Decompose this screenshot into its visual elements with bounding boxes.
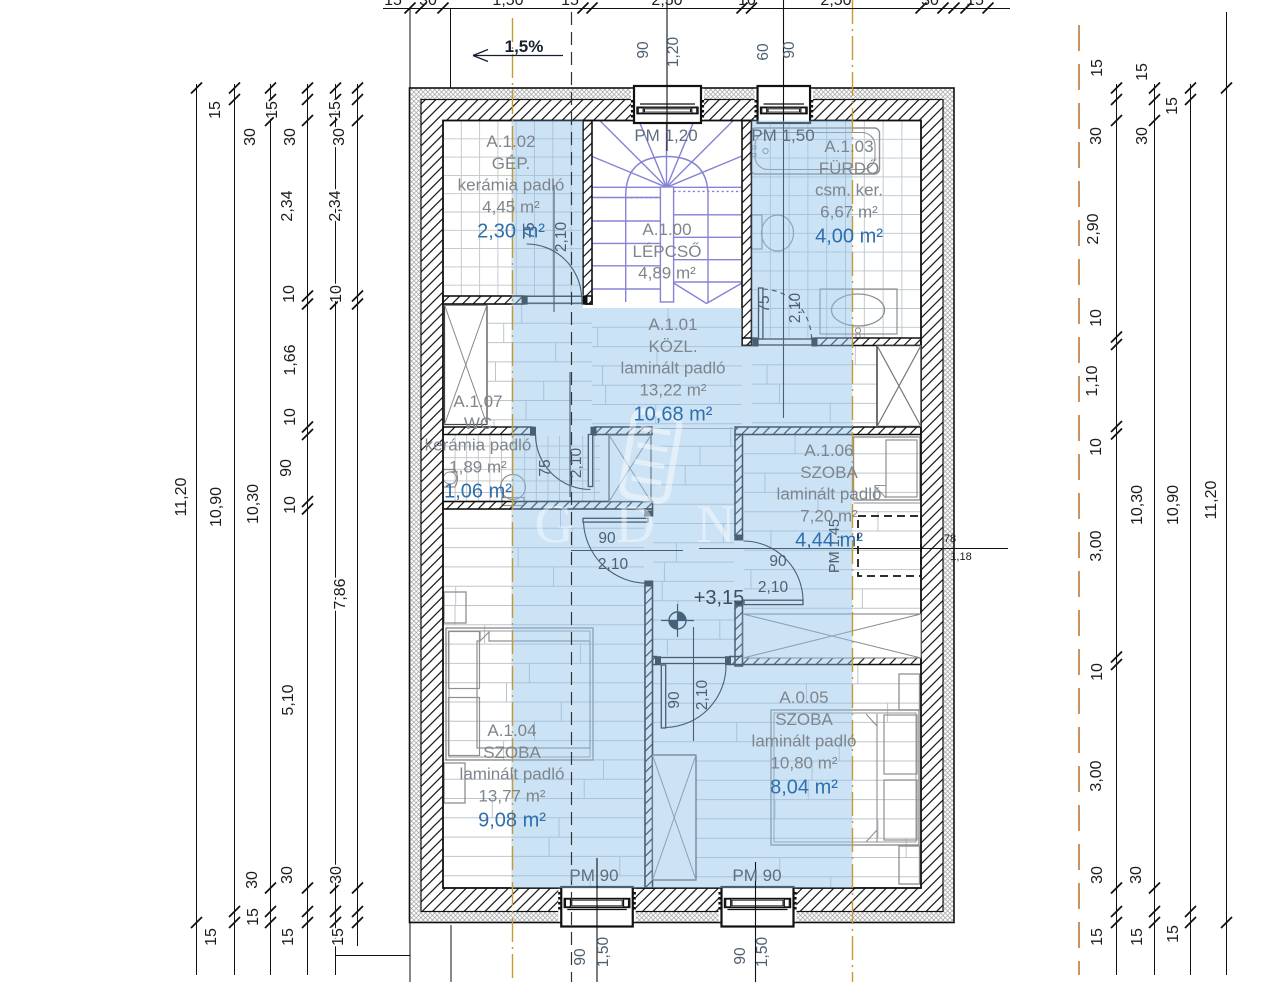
svg-text:A.1.06: A.1.06 (804, 441, 853, 460)
svg-text:15: 15 (384, 0, 402, 9)
svg-text:laminált padló: laminált padló (460, 765, 565, 784)
svg-text:LÉPCSŐ: LÉPCSŐ (633, 242, 702, 261)
svg-text:1,66: 1,66 (282, 344, 299, 375)
svg-text:15: 15 (1089, 59, 1106, 77)
svg-text:13,22 m²: 13,22 m² (639, 380, 706, 399)
svg-text:8,04 m²: 8,04 m² (770, 777, 838, 799)
svg-text:A.1.01: A.1.01 (648, 315, 697, 334)
svg-text:10: 10 (281, 285, 298, 303)
svg-text:2,34: 2,34 (327, 190, 344, 221)
svg-text:13,77 m²: 13,77 m² (478, 786, 545, 805)
svg-text:30: 30 (1134, 127, 1151, 145)
svg-text:7,20 m²: 7,20 m² (800, 506, 858, 525)
svg-text:60: 60 (755, 43, 772, 61)
svg-text:WC: WC (464, 414, 492, 433)
svg-text:11,20: 11,20 (1203, 480, 1220, 519)
svg-text:30: 30 (328, 866, 345, 884)
svg-text:90: 90 (732, 947, 749, 965)
svg-text:1,06 m²: 1,06 m² (444, 481, 512, 503)
svg-text:15: 15 (330, 928, 347, 946)
svg-text:PM 1,20: PM 1,20 (634, 126, 697, 145)
svg-text:2,50: 2,50 (820, 0, 851, 9)
svg-text:15: 15 (245, 908, 262, 926)
svg-text:10,68 m²: 10,68 m² (634, 404, 713, 426)
svg-text:4,00 m²: 4,00 m² (815, 226, 883, 248)
svg-text:15: 15 (1164, 97, 1181, 115)
svg-text:11,20: 11,20 (173, 477, 190, 516)
svg-text:10,80 m²: 10,80 m² (770, 753, 837, 772)
svg-text:15: 15 (264, 101, 281, 119)
svg-text:15: 15 (280, 928, 297, 946)
svg-text:FÜRDŐ: FÜRDŐ (819, 159, 879, 178)
svg-text:30: 30 (419, 0, 437, 9)
svg-text:PM 90: PM 90 (732, 866, 781, 885)
svg-text:A.1.04: A.1.04 (487, 721, 536, 740)
svg-text:PM 90: PM 90 (569, 866, 618, 885)
svg-text:3,00: 3,00 (1088, 760, 1105, 791)
svg-text:15: 15 (1089, 928, 1106, 946)
svg-text:10: 10 (282, 408, 299, 426)
svg-text:10,90: 10,90 (1165, 485, 1182, 525)
svg-text:GÉP.: GÉP. (492, 154, 530, 173)
svg-text:10,30: 10,30 (1129, 485, 1146, 525)
svg-text:10: 10 (1088, 438, 1105, 456)
svg-text:15: 15 (207, 101, 224, 119)
svg-text:1,50: 1,50 (754, 937, 771, 968)
svg-text:6,67 m²: 6,67 m² (820, 202, 878, 221)
svg-text:10: 10 (1089, 663, 1106, 681)
svg-text:90: 90 (781, 41, 798, 59)
svg-text:90: 90 (278, 459, 295, 477)
svg-text:1,20: 1,20 (665, 37, 682, 68)
svg-text:2,10: 2,10 (598, 556, 629, 573)
svg-text:2,10: 2,10 (553, 222, 570, 253)
svg-text:78: 78 (944, 533, 956, 545)
svg-text:30: 30 (921, 0, 939, 9)
svg-text:4,89 m²: 4,89 m² (638, 264, 696, 283)
svg-text:7,86: 7,86 (332, 578, 349, 609)
svg-text:2,10: 2,10 (787, 293, 804, 324)
svg-text:1,50: 1,50 (492, 0, 523, 9)
svg-text:kerámia padló: kerámia padló (458, 176, 565, 195)
svg-text:90: 90 (666, 691, 683, 709)
svg-text:10: 10 (328, 285, 345, 303)
svg-text:10,30: 10,30 (245, 484, 262, 524)
svg-text:10: 10 (1088, 309, 1105, 327)
svg-text:2,10: 2,10 (758, 579, 789, 596)
svg-text:A.0.05: A.0.05 (779, 688, 828, 707)
svg-text:2,30 m²: 2,30 m² (477, 221, 545, 243)
svg-text:csm. ker.: csm. ker. (815, 181, 883, 200)
svg-text:A.1.02: A.1.02 (486, 132, 535, 151)
svg-text:5,10: 5,10 (280, 684, 297, 715)
svg-text:A.1.03: A.1.03 (824, 137, 873, 156)
svg-text:4,45 m²: 4,45 m² (482, 197, 540, 216)
svg-text:30: 30 (1088, 127, 1105, 145)
svg-text:10: 10 (738, 0, 756, 9)
svg-text:15: 15 (203, 928, 220, 946)
svg-text:laminált padló: laminált padló (752, 732, 857, 751)
svg-text:30: 30 (242, 128, 259, 146)
svg-text:1,5%: 1,5% (505, 37, 544, 56)
svg-text:30: 30 (279, 866, 296, 884)
svg-text:SZOBA: SZOBA (775, 710, 833, 729)
svg-text:10: 10 (282, 496, 299, 514)
svg-text:30: 30 (331, 128, 348, 146)
svg-text:90: 90 (635, 41, 652, 59)
svg-text:2,50: 2,50 (651, 0, 682, 9)
svg-text:90: 90 (598, 530, 616, 547)
svg-text:2,90: 2,90 (1085, 213, 1102, 244)
svg-text:PM 1,50: PM 1,50 (751, 126, 814, 145)
svg-text:+3,15: +3,15 (694, 587, 745, 609)
svg-text:30: 30 (282, 128, 299, 146)
svg-text:SZOBA: SZOBA (800, 463, 858, 482)
svg-text:9,08 m²: 9,08 m² (478, 810, 546, 832)
svg-text:laminált padló: laminált padló (621, 359, 726, 378)
svg-text:15: 15 (1129, 928, 1146, 946)
svg-text:laminált padló: laminált padló (777, 485, 882, 504)
svg-text:90: 90 (572, 948, 589, 966)
svg-text:75: 75 (756, 295, 773, 312)
svg-text:A.1.07: A.1.07 (453, 392, 502, 411)
svg-text:30: 30 (1089, 866, 1106, 884)
svg-text:90: 90 (769, 553, 787, 570)
svg-text:30: 30 (244, 871, 261, 889)
svg-text:2,10: 2,10 (568, 448, 585, 479)
svg-text:kerámia padló: kerámia padló (425, 436, 532, 455)
svg-text:10,90: 10,90 (208, 487, 225, 527)
svg-text:A.1.00: A.1.00 (642, 220, 691, 239)
svg-text:15: 15 (1165, 925, 1182, 943)
svg-text:15: 15 (327, 101, 344, 119)
svg-text:1,50: 1,50 (595, 937, 612, 968)
svg-text:30: 30 (1128, 866, 1145, 884)
svg-text:2,34: 2,34 (279, 190, 296, 221)
svg-text:3,00: 3,00 (1088, 530, 1105, 561)
svg-text:15: 15 (1134, 63, 1151, 81)
svg-text:1,18: 1,18 (950, 551, 971, 563)
svg-text:75: 75 (537, 459, 554, 476)
svg-text:4,44 m²: 4,44 m² (795, 530, 863, 552)
svg-text:1,89 m²: 1,89 m² (449, 457, 507, 476)
svg-text:2,10: 2,10 (694, 680, 711, 711)
svg-text:SZOBA: SZOBA (483, 743, 541, 762)
svg-text:KÖZL.: KÖZL. (648, 337, 697, 356)
svg-text:15: 15 (561, 0, 579, 9)
svg-text:1,10: 1,10 (1084, 365, 1101, 396)
svg-text:15: 15 (966, 0, 984, 9)
